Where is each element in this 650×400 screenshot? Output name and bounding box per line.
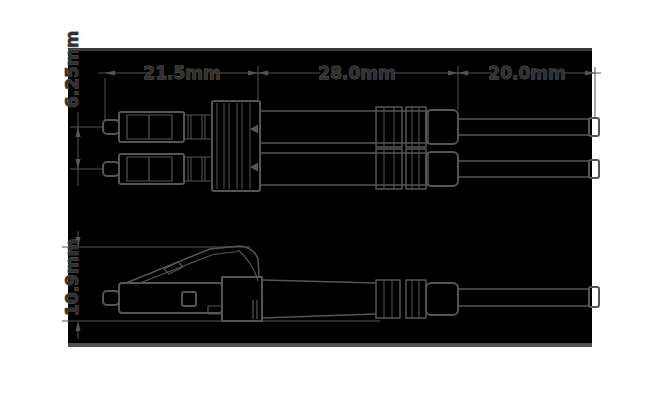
dim-label-20-0: 20.0mm — [488, 63, 565, 83]
panel-background — [68, 48, 592, 347]
dim-label-6-25: 6.25mm — [62, 31, 82, 108]
dim-label-28-0: 28.0mm — [318, 63, 395, 83]
technical-drawing-svg: 21.5mm 28.0mm 20.0mm 6.25mm — [0, 0, 650, 400]
panel-top-edge — [68, 48, 592, 51]
dim-label-10-9: 10.9mm — [62, 239, 82, 316]
drawing-canvas: 21.5mm 28.0mm 20.0mm 6.25mm — [0, 0, 650, 400]
panel-bottom-edge — [68, 343, 592, 347]
dim-label-21-5: 21.5mm — [143, 63, 220, 83]
